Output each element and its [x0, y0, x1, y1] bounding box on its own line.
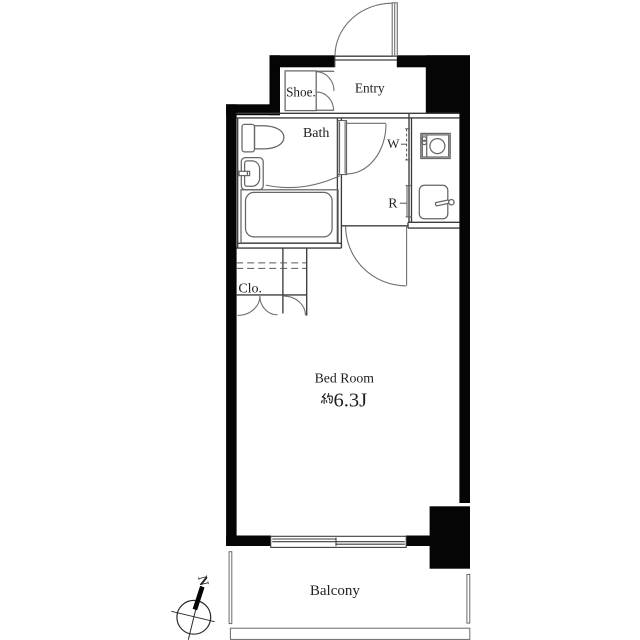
svg-text:R: R	[388, 196, 398, 211]
svg-text:Entry: Entry	[355, 80, 385, 95]
svg-text:Balcony: Balcony	[310, 583, 360, 599]
svg-text:Clo.: Clo.	[238, 282, 262, 297]
svg-text:W: W	[387, 136, 400, 151]
svg-text:Bed Room: Bed Room	[315, 370, 375, 385]
svg-text:6.3J: 6.3J	[333, 389, 367, 411]
svg-text:Shoe.: Shoe.	[286, 85, 316, 100]
svg-text:Bath: Bath	[303, 126, 329, 141]
